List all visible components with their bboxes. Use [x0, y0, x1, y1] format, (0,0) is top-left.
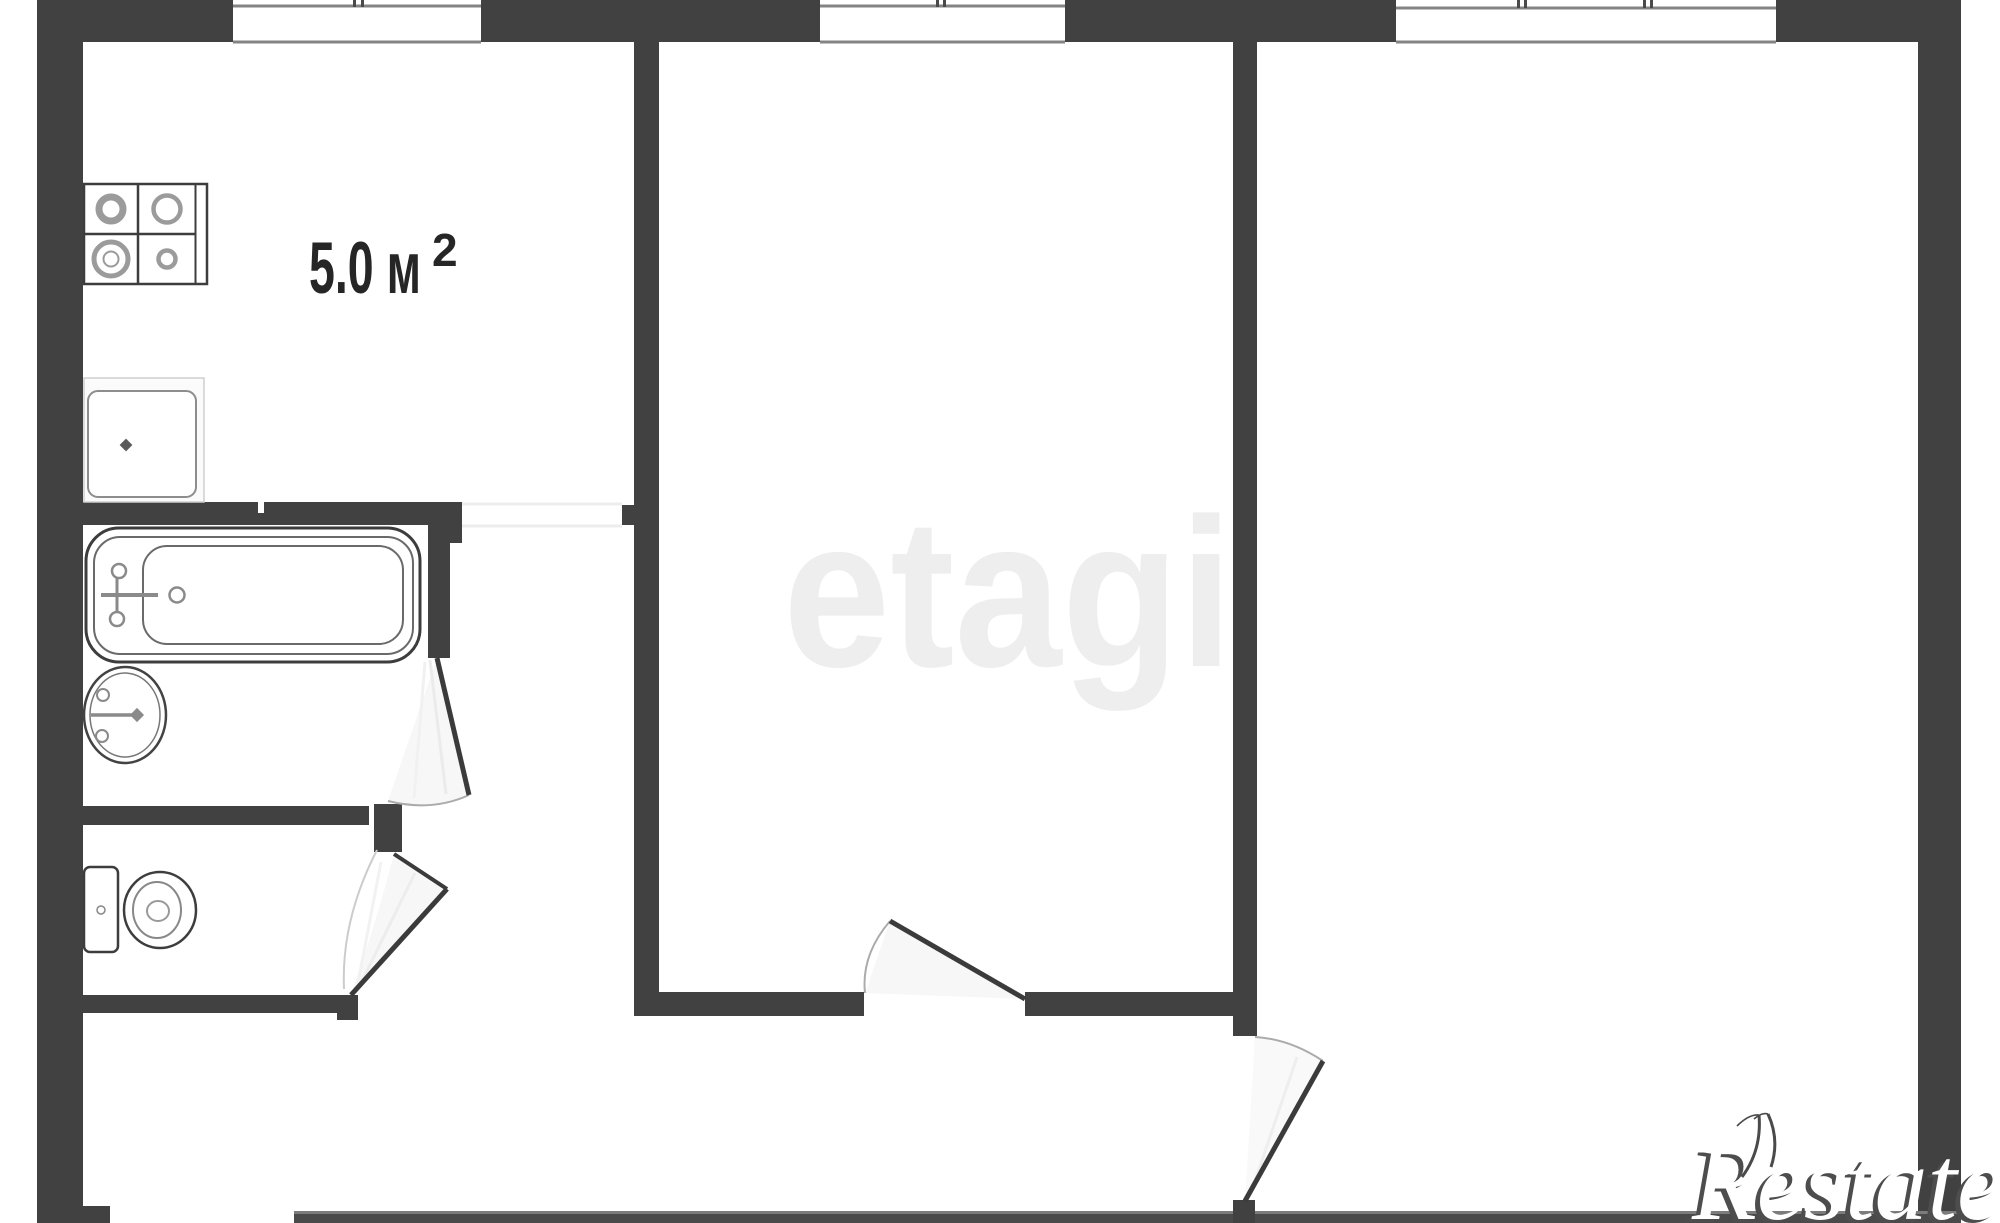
svg-text:etagi: etagi [783, 474, 1233, 711]
svg-text:Restate: Restate [1691, 1125, 2000, 1223]
svg-text:2: 2 [432, 224, 458, 276]
svg-text:5.0 м: 5.0 м [309, 228, 421, 309]
